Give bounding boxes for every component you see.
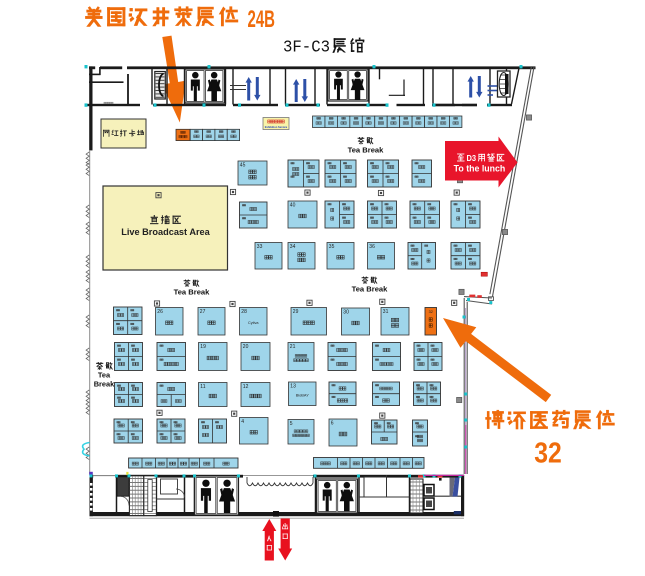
svg-text:34: 34	[290, 244, 296, 250]
svg-text:13: 13	[290, 384, 296, 390]
svg-text:4: 4	[241, 419, 244, 425]
svg-text:Exhibition Service: Exhibition Service	[265, 125, 288, 129]
svg-text:12: 12	[243, 384, 249, 390]
svg-text:45: 45	[240, 163, 246, 169]
svg-text:24B: 24B	[248, 6, 276, 33]
svg-text:Break: Break	[94, 380, 115, 389]
svg-text:32: 32	[534, 438, 562, 470]
svg-text:26: 26	[157, 309, 163, 315]
svg-text:30: 30	[343, 310, 349, 316]
svg-text:Tea Break: Tea Break	[348, 146, 385, 155]
svg-text:35: 35	[329, 244, 335, 250]
svg-text:28: 28	[241, 309, 247, 315]
svg-text:11: 11	[200, 384, 205, 390]
svg-text:36: 36	[369, 244, 375, 250]
svg-text:6: 6	[331, 421, 334, 427]
svg-text:Tea: Tea	[98, 371, 111, 380]
svg-text:27: 27	[200, 309, 206, 315]
svg-text:Live Broadcast Area: Live Broadcast Area	[121, 227, 210, 237]
svg-text:40: 40	[290, 203, 296, 209]
svg-text:33: 33	[257, 244, 263, 250]
svg-text:29: 29	[293, 309, 299, 315]
svg-text:20: 20	[243, 344, 249, 350]
svg-text:Tea Break: Tea Break	[174, 288, 211, 297]
svg-text:3F-C3: 3F-C3	[283, 39, 330, 58]
svg-text:To the lunch: To the lunch	[454, 164, 506, 174]
svg-text:BioBAY: BioBAY	[296, 393, 310, 398]
svg-text:Cytiva: Cytiva	[248, 321, 259, 325]
svg-text:32: 32	[429, 310, 433, 314]
svg-text:21: 21	[290, 344, 296, 350]
svg-text:19: 19	[200, 344, 206, 350]
svg-text:D3: D3	[467, 153, 477, 163]
svg-text:31: 31	[383, 309, 389, 315]
svg-text:5: 5	[290, 421, 293, 427]
svg-text:Tea Break: Tea Break	[352, 285, 389, 294]
